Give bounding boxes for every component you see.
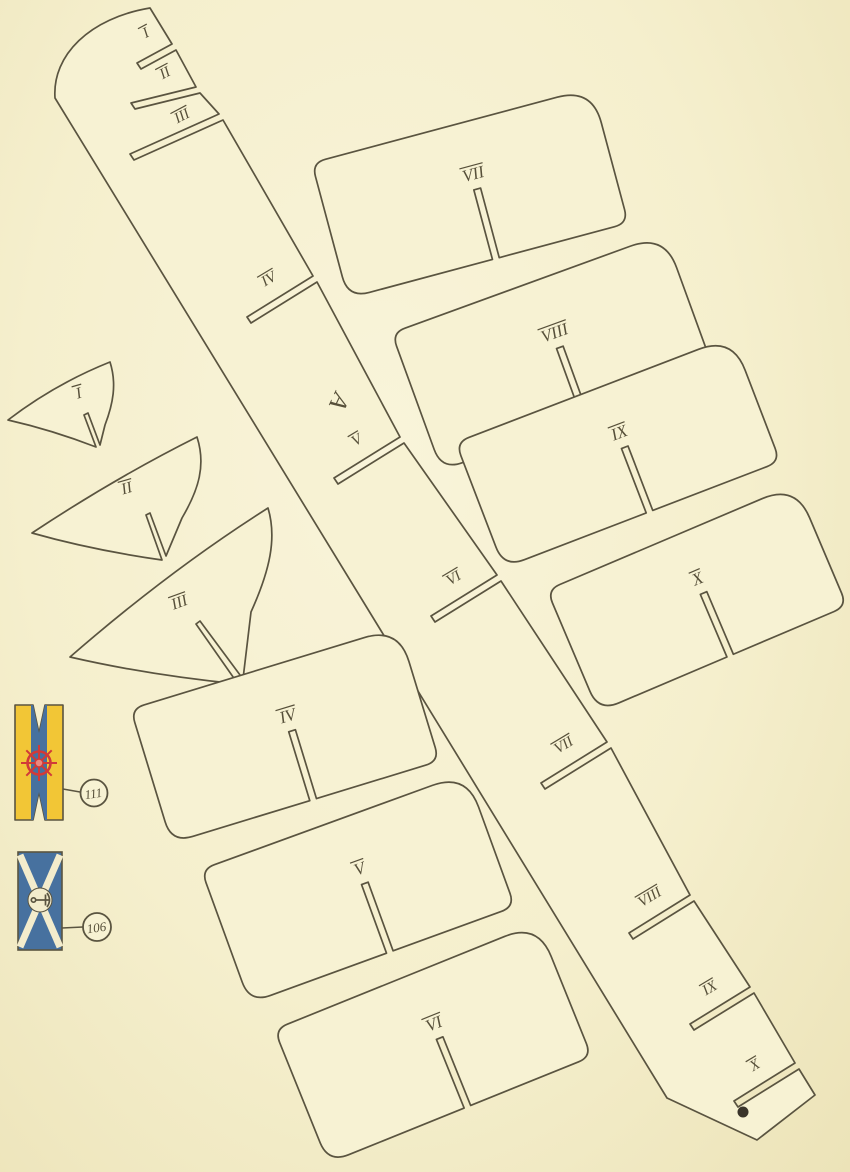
emblem-wheel-pennant: 111 xyxy=(15,705,108,820)
part-number-106: 106 xyxy=(86,919,108,937)
registration-dot xyxy=(738,1107,749,1118)
bow-frame-2: II xyxy=(32,437,201,560)
bow-frame-1-outline xyxy=(8,362,114,447)
part-number-111: 111 xyxy=(84,785,103,802)
sheet-drawing: A I II III IV V VI VII xyxy=(0,0,850,1172)
wheel-hub xyxy=(35,759,43,767)
bow-frame-1: I xyxy=(8,362,114,447)
model-cutout-sheet: A I II III IV V VI VII xyxy=(0,0,850,1172)
bow-frame-2-outline xyxy=(32,437,201,560)
part-number-leader-106 xyxy=(62,927,83,928)
emblem-anchor-pennant: 106 xyxy=(18,852,111,950)
part-number-leader-111 xyxy=(63,789,80,792)
part-number-106-text: 106 xyxy=(86,919,108,937)
part-number-111-text: 111 xyxy=(84,785,103,802)
ship-wheel-icon xyxy=(21,745,57,781)
